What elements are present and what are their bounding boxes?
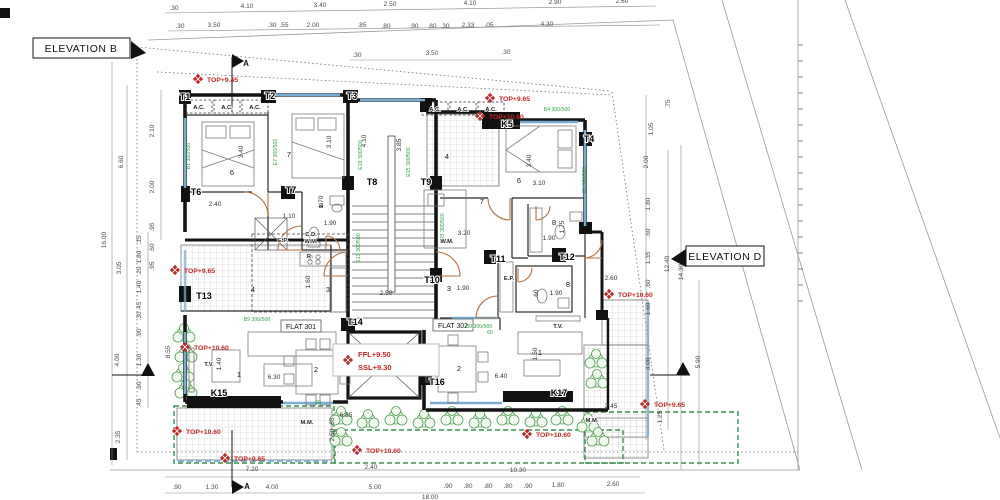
dimension-label: 7.20 [246, 466, 259, 473]
dimension-label: .30 [352, 52, 361, 59]
dimension-label: .60 [645, 279, 652, 288]
dimension-label: 3.40 [526, 154, 533, 167]
beam-code-label: B9 300/500 [244, 317, 271, 323]
floor-plan-sheet: ELEVATION B ELEVATION D FLAT 301 FLAT 30… [0, 0, 1000, 500]
column-label: T8 [367, 177, 378, 187]
dimension-label: .60 [533, 289, 540, 298]
dimension-label: .30 [136, 311, 143, 320]
dimension-label: 2.00 [307, 22, 320, 29]
dimension-label: 4.00 [114, 353, 121, 366]
level-marker-icon [352, 445, 362, 455]
annotation-label: A.C. [429, 107, 441, 113]
dimension-label: .30 [175, 23, 184, 30]
annotation-label: E.P. [504, 276, 515, 282]
column-label: T9 [421, 177, 432, 187]
dimension-label: 1.90 [324, 220, 337, 227]
dimension-label: 1.35 [645, 251, 652, 264]
dimension-label: 1.90 [550, 290, 563, 297]
beam-code-label: E5 300/500 [582, 167, 588, 194]
dimension-label: .80 [427, 23, 436, 30]
elevation-d-tag: ELEVATION D [671, 246, 764, 267]
dimension-label: 1.05 [648, 122, 655, 135]
dimension-label: 2.50 [380, 290, 393, 297]
dimension-label: .45 [136, 301, 143, 310]
dimension-label: 18.00 [422, 494, 439, 500]
elevation-b-tag: ELEVATION B [33, 38, 146, 59]
top-level-marker: TOP+9.65 [499, 96, 530, 103]
dimension-label: .80 [381, 23, 390, 30]
dimension-label: 1.75 [559, 220, 566, 233]
top-level-marker: TOP+9.65 [184, 268, 215, 275]
dimension-label: 3.20 [458, 230, 471, 237]
column-label: T6 [191, 187, 202, 197]
dimension-label: 3.40 [238, 145, 245, 158]
level-marker-icon [170, 265, 180, 275]
dimension-label: 3.10 [533, 180, 546, 187]
dimension-label: 1.60 [645, 302, 652, 315]
dimension-label: .60 [645, 228, 652, 237]
dimension-label: .75 [665, 99, 672, 108]
dimension-label: 1.30 [206, 484, 219, 491]
dimension-label: 3.85 [396, 138, 403, 151]
top-level-marker: TOP+10.60 [194, 345, 229, 352]
column-label: K17 [551, 388, 568, 398]
dimension-label: 6.60 [118, 155, 125, 168]
dimension-label: 2.00 [643, 155, 650, 168]
elevation-d-label: ELEVATION D [688, 251, 761, 263]
dimension-label: .95 [149, 222, 156, 231]
dimension-label: 2.00 [149, 180, 156, 193]
room-number: 6 [230, 168, 234, 177]
dimension-label: .90 [523, 483, 532, 490]
dimension-label: 3.50 [208, 22, 221, 29]
column-label: T1 [180, 92, 191, 102]
beam-code-label: 60 [487, 330, 493, 336]
dimension-label: 1.40 [136, 280, 143, 293]
flat-301-tag: FLAT 301 [281, 320, 321, 332]
flat-302-label: FLAT 302 [438, 323, 468, 330]
floor-plan-canvas: ELEVATION B ELEVATION D FLAT 301 FLAT 30… [0, 0, 1000, 500]
column-label: T10 [424, 275, 440, 285]
annotation-label: A.C. [221, 105, 233, 111]
dimension-label: 1.25 [657, 410, 664, 423]
top-level-marker: TOP+10.60 [366, 448, 401, 455]
dimension-label: 2.33 [462, 22, 475, 29]
flat-301-label: FLAT 301 [286, 324, 316, 331]
dimension-label: 3.00 [645, 357, 652, 370]
room-number: 2 [457, 364, 461, 373]
section-letter: A [243, 59, 249, 68]
beam-code-label: E13 300/500 [356, 233, 362, 263]
annotation-label: A.C. [457, 107, 469, 113]
dimension-label: 3.40 [314, 2, 327, 9]
dimension-label: .65 [329, 417, 336, 426]
room-number: 1 [538, 348, 542, 357]
section-letter: A [244, 482, 250, 491]
dimension-label: .80 [463, 483, 472, 490]
dimension-label: .30 [501, 49, 510, 56]
dimension-label: 1.40 [216, 357, 223, 370]
dimension-label: 12.40 [664, 255, 671, 272]
top-level-marker: TOP+9.65 [234, 456, 265, 463]
room-number: 3 [326, 285, 330, 294]
dimension-label: .90 [136, 381, 143, 390]
room-number: 4 [445, 152, 449, 161]
dimension-label: 2.40 [365, 464, 378, 471]
annotation-label: M.M. [586, 418, 599, 424]
dimension-label: 6.40 [495, 373, 508, 380]
dimension-label: 2.60 [616, 0, 629, 5]
elevation-b-arrow-icon [131, 41, 146, 59]
room-number: 6 [517, 176, 521, 185]
annotation-label: T.V. [204, 362, 214, 368]
column-label: T13 [196, 291, 212, 301]
dimension-label: .55 [279, 22, 288, 29]
column-label: T12 [559, 252, 575, 262]
room-number: 7 [287, 150, 291, 159]
dimension-label: .30 [267, 22, 276, 29]
ssl-label: SSL+9.30 [358, 363, 392, 372]
dimension-label: .20 [136, 266, 143, 275]
level-marker-icon [485, 93, 495, 103]
dimension-label: 2.90 [549, 0, 562, 6]
room-number: 1 [237, 370, 241, 379]
dimension-label: .15 [136, 235, 143, 244]
dimension-label: 1.80 [552, 482, 565, 489]
dimension-label: 2.60 [605, 275, 618, 282]
top-level-marker: TOP+9.65 [654, 402, 685, 409]
site-boundary-lines [0, 0, 1000, 470]
dimension-label: 2.50 [329, 428, 336, 441]
dimension-label: 2.50 [384, 1, 397, 8]
annotation-label: A.C. [249, 105, 261, 111]
dimension-label: .90 [409, 23, 418, 30]
dimension-label: .45 [136, 398, 143, 407]
beam-code-label: B1 300/500 [186, 143, 192, 170]
dimension-label: 3.50 [426, 50, 439, 57]
dimension-label: 4.30 [541, 21, 554, 28]
dimension-label: 1.90 [543, 235, 556, 242]
beam-code-label: 60 [315, 400, 321, 406]
dimension-label: 5.90 [695, 355, 702, 368]
column-label: K15 [211, 388, 228, 398]
room-number: 2 [314, 365, 318, 374]
annotation-label: A.C. [193, 105, 205, 111]
dimension-label: 6.85 [340, 412, 353, 419]
dimension-label: .80 [503, 483, 512, 490]
level-marker-icon [604, 289, 614, 299]
level-marker-icon [193, 74, 203, 84]
column-label: T3 [347, 91, 358, 101]
top-level-marker: TOP+10.60 [489, 114, 524, 121]
dimension-label: 1.30 [136, 353, 143, 366]
dimension-label: 4.00 [266, 484, 279, 491]
dimension-label: 2.35 [115, 430, 122, 443]
column-label: T4 [584, 134, 595, 144]
annotation-label: T.V. [553, 324, 563, 330]
annotation-label: C.D. [305, 232, 317, 238]
dimension-label: .80 [483, 483, 492, 490]
dimension-label: .30 [440, 23, 449, 30]
dimension-label: .30 [169, 5, 178, 12]
beam-code-label: E15 300/500 [406, 147, 412, 177]
annotation-label: W.M. [304, 239, 318, 245]
column-label: T16 [429, 377, 445, 387]
dimension-label: 6.30 [268, 374, 281, 381]
room-number: 8 [319, 201, 323, 210]
room-number: 4 [251, 285, 255, 294]
dimension-label: 16.00 [101, 231, 108, 248]
level-tag: FFL+9.50 SSL+9.30 [333, 344, 439, 376]
dimension-label: 4.10 [464, 0, 477, 7]
room-number: 3 [447, 284, 451, 293]
column-label: T14 [347, 317, 363, 327]
dimension-label: 1.10 [283, 213, 296, 220]
top-level-marker: TOP+10.60 [618, 292, 653, 299]
dimension-label: 8.55 [165, 345, 172, 358]
column-label: T2 [265, 91, 276, 101]
dimension-label: .90 [443, 483, 452, 490]
dimension-label: 14.30 [678, 263, 685, 280]
dimension-label: 4.10 [241, 3, 254, 10]
top-level-marker: TOP+10.60 [536, 432, 571, 439]
annotation-label: M.M. [301, 420, 314, 426]
dimension-label: .95 [149, 261, 156, 270]
dimension-label: .90 [172, 484, 181, 491]
dimension-label: 10.30 [510, 467, 527, 474]
dimension-label: .85 [357, 22, 366, 29]
dimension-label: 2.45 [605, 403, 618, 410]
dimension-label: 3.10 [326, 135, 333, 148]
dimension-label: 1.60 [305, 275, 312, 288]
beam-code-label: B4 300/500 [544, 107, 571, 113]
ffl-label: FFL+9.50 [358, 350, 391, 359]
dimension-label: 1.80 [645, 197, 652, 210]
elevation-b-label: ELEVATION B [45, 43, 118, 55]
top-level-marker: TOP+10.60 [186, 429, 221, 436]
dimension-label: 2.10 [149, 124, 156, 137]
dimension-label: 2.40 [209, 201, 222, 208]
room-number: 7 [480, 197, 484, 206]
dimension-label: 2.60 [607, 481, 620, 488]
annotation-label: E.P. [278, 238, 289, 244]
beam-code-label: E7 300/500 [273, 139, 279, 166]
dimension-label: 1.80 [136, 250, 143, 263]
dimension-label: .05 [484, 22, 493, 29]
annotation-label: A.C. [485, 107, 497, 113]
dimension-label: 3.05 [116, 261, 123, 274]
top-level-marker: TOP+9.45 [207, 77, 238, 84]
column-label: T7 [286, 185, 297, 195]
dimension-label: 5.00 [369, 484, 382, 491]
dimension-label: 1.90 [457, 285, 470, 292]
column-label: T11 [490, 254, 505, 264]
annotation-label: W.M. [440, 239, 454, 245]
room-number: 8 [566, 280, 570, 289]
dimension-label: .90 [136, 328, 143, 337]
room-number: 8 [552, 218, 556, 227]
beam-code-label: E19 300/500 [358, 140, 364, 170]
dimension-label: .60 [149, 243, 156, 252]
